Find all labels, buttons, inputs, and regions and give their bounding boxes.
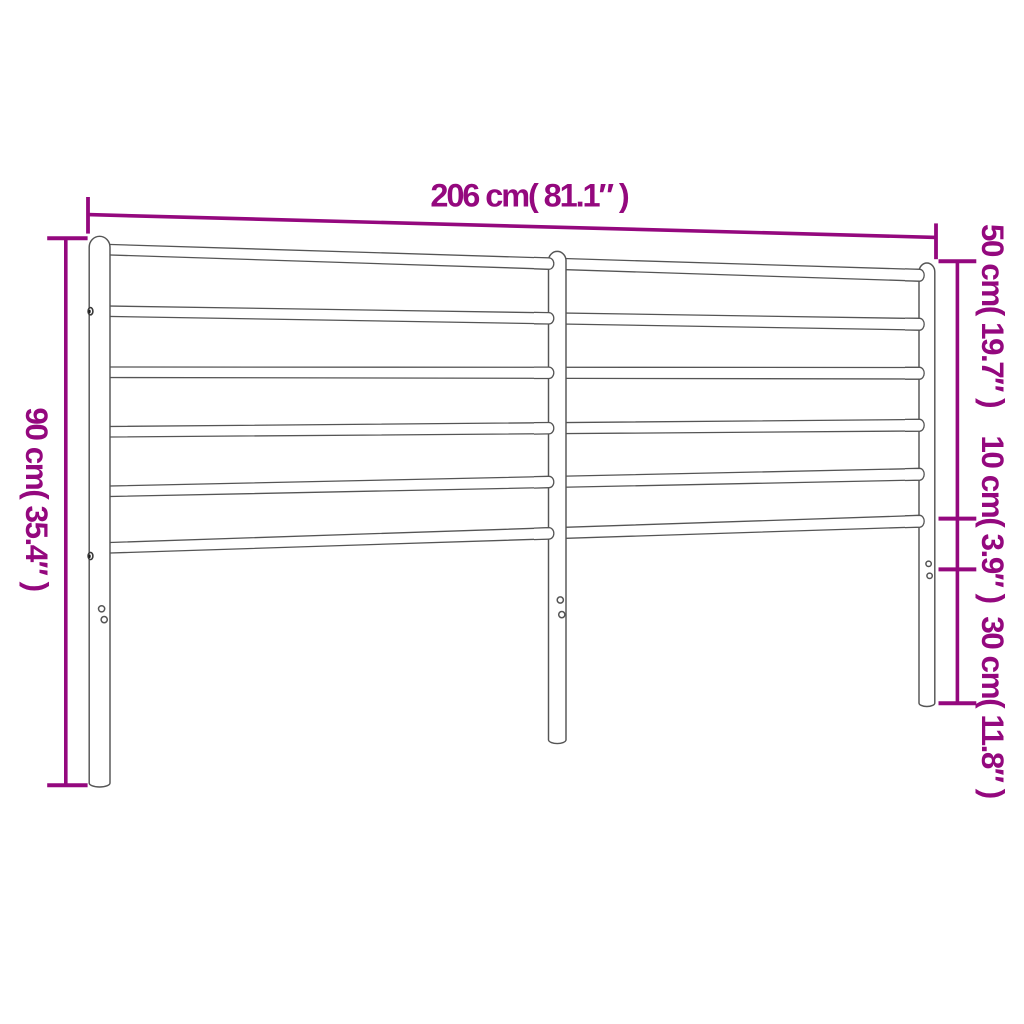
svg-text:50 cm( 19.7″ ): 50 cm( 19.7″ ) — [975, 224, 1011, 407]
svg-text:206 cm( 81.1″ ): 206 cm( 81.1″ ) — [430, 177, 629, 213]
svg-text:10 cm( 3.9″ ): 10 cm( 3.9″ ) — [975, 435, 1011, 602]
svg-text:90 cm( 35.4″ ): 90 cm( 35.4″ ) — [19, 407, 55, 590]
svg-text:30 cm( 11.8″ ): 30 cm( 11.8″ ) — [975, 616, 1011, 797]
